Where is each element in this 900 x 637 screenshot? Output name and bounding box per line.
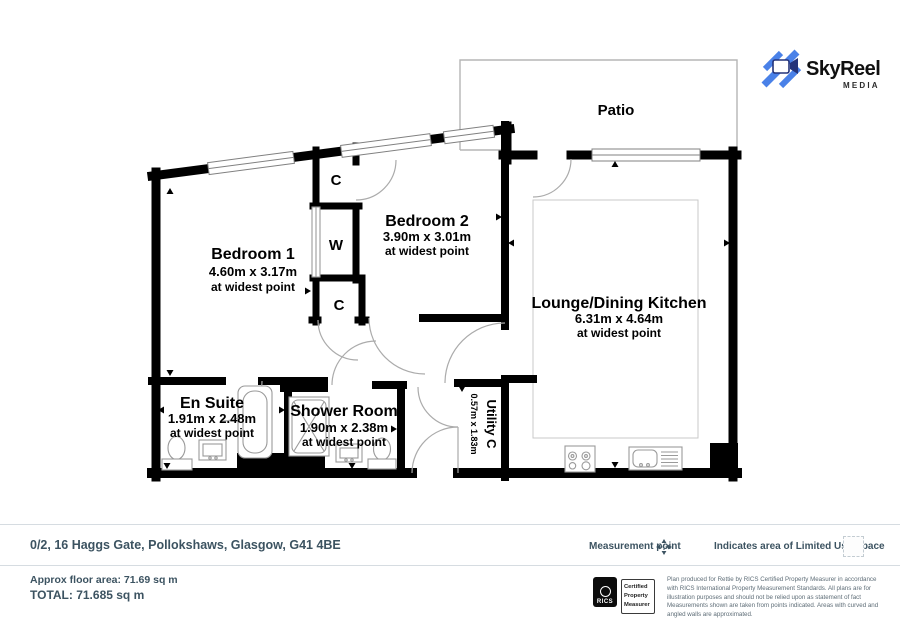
divider-bottom	[0, 565, 900, 566]
limited-use-space-swatch	[843, 536, 864, 557]
ensuite-name: En Suite	[180, 395, 244, 412]
closet-low-label: C	[334, 297, 345, 314]
closet-top-label: C	[331, 172, 342, 189]
skyreel-logo-text: SkyReel	[806, 58, 880, 80]
windows	[208, 125, 700, 174]
bedroom1-note: at widest point	[211, 280, 295, 294]
shower-room-note: at widest point	[302, 435, 386, 449]
bedroom1-dims: 4.60m x 3.17m	[209, 264, 297, 279]
bedroom2-dims: 3.90m x 3.01m	[383, 229, 471, 244]
cert-line-2: Property	[624, 592, 652, 601]
skyreel-logo-sub: MEDIA	[843, 81, 880, 90]
bedroom2-note: at widest point	[385, 244, 469, 258]
door-arcs	[222, 159, 571, 473]
floor-plan: Patio Bedroom 1 4.60m x 3.17m at widest …	[0, 0, 900, 525]
skyreel-logo: SkyReel MEDIA	[764, 52, 880, 90]
rics-logo: RICS	[593, 577, 617, 607]
lounge-name: Lounge/Dining Kitchen	[531, 295, 706, 312]
bedroom1-name: Bedroom 1	[211, 246, 295, 263]
plan-disclaimer: Plan produced for Rettie by RICS Certifi…	[667, 576, 879, 620]
property-address: 0/2, 16 Haggs Gate, Pollokshaws, Glasgow…	[30, 538, 341, 552]
approx-floor-area: Approx floor area: 71.69 sq m	[30, 574, 178, 586]
wardrobe-label: W	[329, 237, 344, 254]
cert-line-1: Certified	[624, 583, 652, 592]
ensuite-dims: 1.91m x 2.48m	[168, 411, 256, 426]
total-floor-area: TOTAL: 71.685 sq m	[30, 588, 144, 602]
ensuite-note: at widest point	[170, 426, 254, 440]
floorplan-page: { "logo": { "brand": "SkyReel", "sub": "…	[0, 0, 900, 637]
measurement-point-icon	[656, 539, 672, 555]
cert-line-3: Measurer	[624, 601, 652, 610]
divider-top	[0, 524, 900, 525]
certified-property-measurer-badge: Certified Property Measurer	[621, 579, 655, 614]
bedroom2-name: Bedroom 2	[385, 213, 469, 230]
rics-emblem-icon	[600, 586, 611, 597]
lounge-note: at widest point	[577, 326, 661, 340]
utility-dims: 0.57m x 1.83m	[469, 393, 479, 454]
skyreel-logo-icon	[764, 52, 799, 86]
shower-room-name: Shower Room	[290, 403, 398, 420]
lounge-dims: 6.31m x 4.64m	[575, 311, 663, 326]
wardrobe-sliding-door	[312, 207, 320, 277]
shower-room-dims: 1.90m x 2.38m	[300, 420, 388, 435]
utility-name: Utility C	[484, 399, 499, 449]
patio-label: Patio	[598, 102, 635, 119]
rics-wordmark: RICS	[597, 599, 613, 605]
